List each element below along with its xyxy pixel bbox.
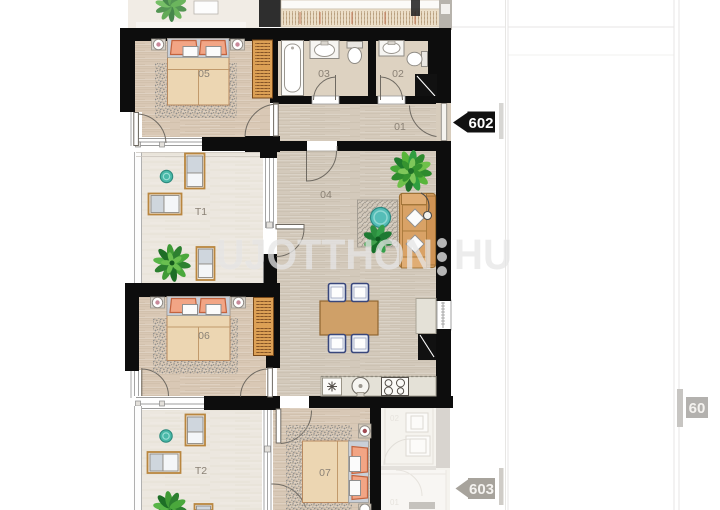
svg-text:T1: T1	[195, 206, 207, 218]
svg-text:02: 02	[392, 68, 404, 80]
svg-text:HU: HU	[454, 231, 512, 279]
svg-text:06: 06	[198, 330, 210, 342]
svg-text:01: 01	[390, 498, 399, 507]
svg-text:T2: T2	[195, 465, 207, 477]
svg-text:03: 03	[318, 68, 330, 80]
svg-text:603: 603	[469, 481, 494, 498]
svg-text:02: 02	[390, 414, 399, 423]
svg-text:05: 05	[198, 68, 210, 80]
svg-text:01: 01	[394, 121, 406, 133]
svg-text:04: 04	[320, 189, 332, 201]
svg-text:602: 602	[468, 115, 493, 132]
svg-text:07: 07	[319, 467, 331, 479]
svg-text:UJOTTHON: UJOTTHON	[216, 231, 433, 279]
svg-text:60: 60	[689, 400, 706, 417]
